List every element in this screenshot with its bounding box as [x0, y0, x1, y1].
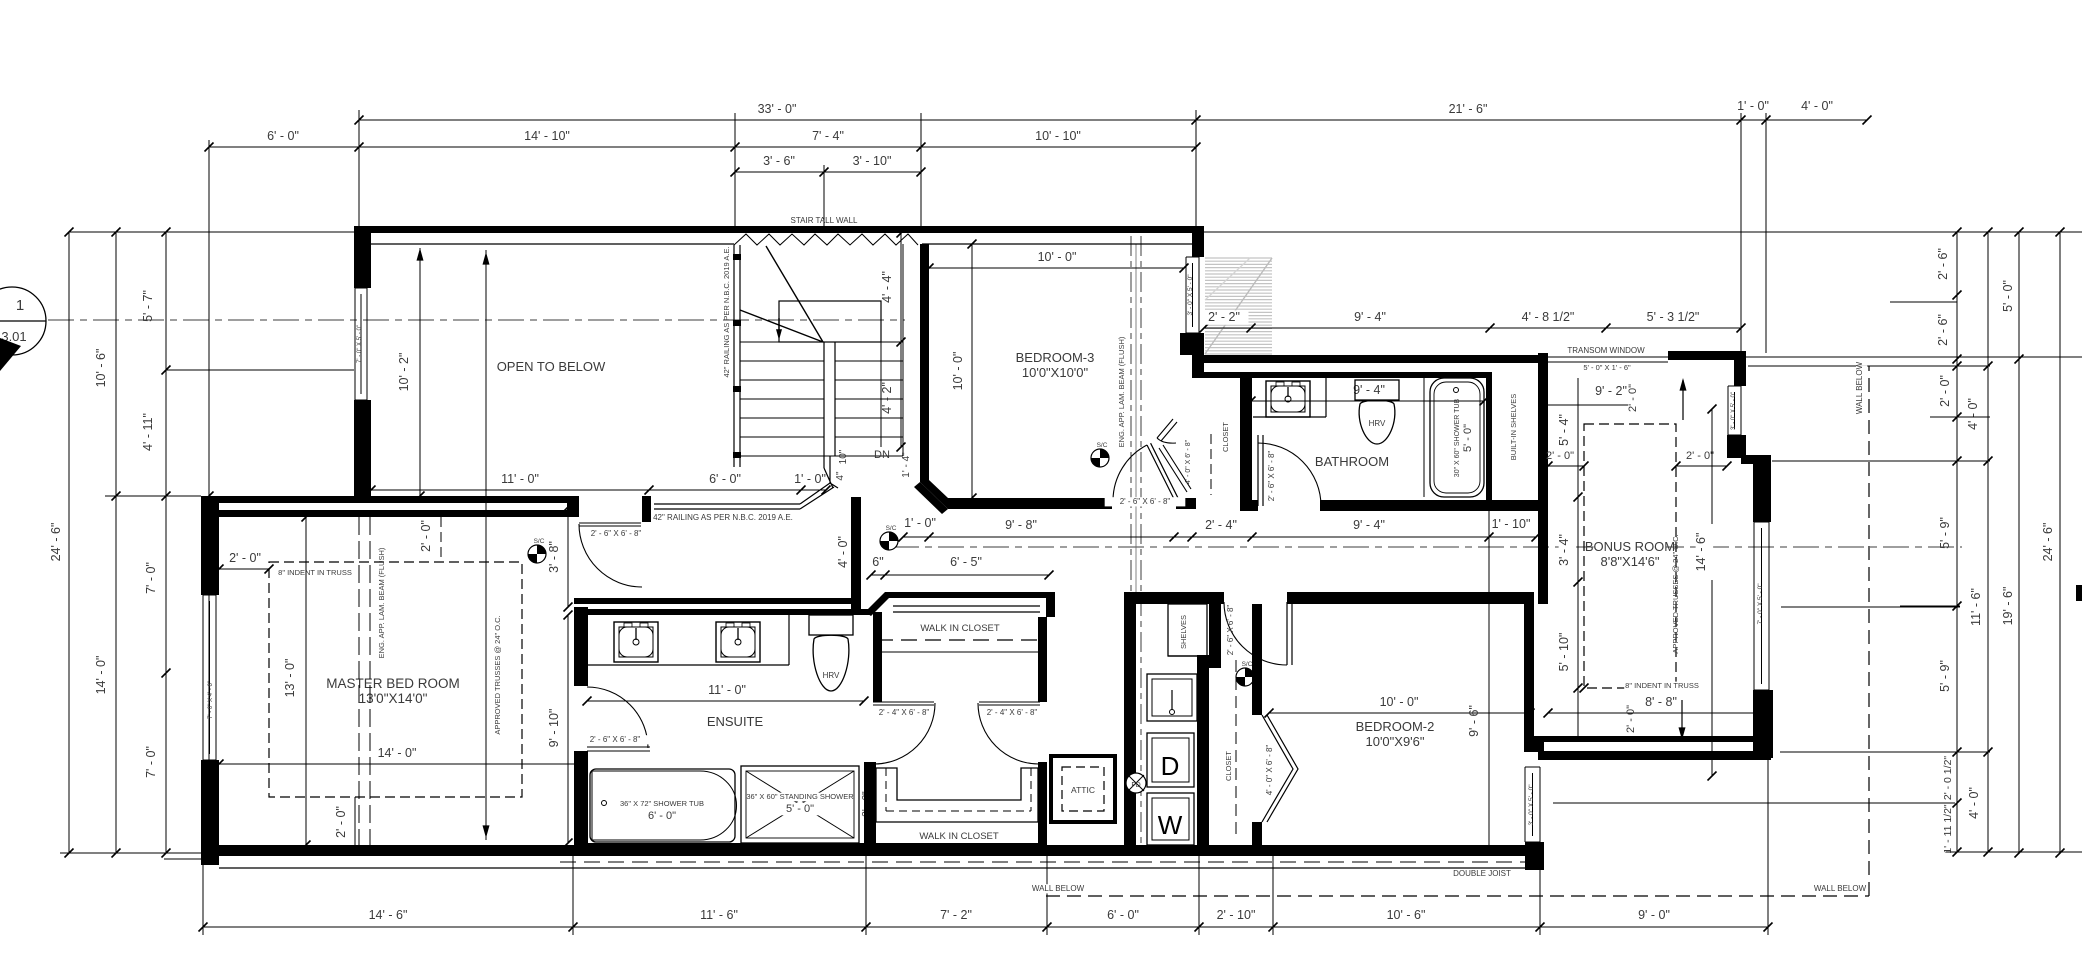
svg-text:11' - 0": 11' - 0": [708, 683, 746, 697]
svg-text:5' - 0": 5' - 0": [2001, 280, 2015, 312]
svg-text:S/C: S/C: [886, 525, 897, 532]
svg-text:7' - 0": 7' - 0": [144, 746, 158, 778]
svg-text:S/C: S/C: [1242, 661, 1253, 668]
svg-text:14' - 10": 14' - 10": [524, 129, 570, 143]
svg-text:ENG. APP. LAM. BEAM (FLUSH): ENG. APP. LAM. BEAM (FLUSH): [1117, 336, 1126, 447]
svg-text:ENG. APP. LAM. BEAM (FLUSH): ENG. APP. LAM. BEAM (FLUSH): [377, 547, 386, 658]
svg-text:2' - 0": 2' - 0": [334, 806, 348, 838]
svg-text:W: W: [1158, 810, 1183, 840]
svg-text:2' - 6" X 6' - 8": 2' - 6" X 6' - 8": [1267, 451, 1276, 502]
svg-text:33' - 0": 33' - 0": [758, 102, 797, 116]
svg-text:4": 4": [835, 471, 846, 481]
svg-text:CLOSET: CLOSET: [1221, 422, 1230, 452]
svg-text:9' - 2": 9' - 2": [1595, 384, 1627, 398]
svg-text:1' - 0": 1' - 0": [1737, 99, 1769, 113]
svg-text:6' - 0": 6' - 0": [267, 129, 299, 143]
svg-text:10'0"X10'0": 10'0"X10'0": [1022, 365, 1089, 380]
svg-text:13'0"X14'0": 13'0"X14'0": [359, 691, 428, 706]
svg-text:1: 1: [16, 297, 24, 314]
svg-text:2' - 0": 2' - 0": [229, 551, 261, 565]
svg-text:STAIR TALL WALL: STAIR TALL WALL: [791, 216, 859, 225]
svg-text:10' - 6": 10' - 6": [94, 349, 108, 388]
svg-text:4' - 11": 4' - 11": [141, 413, 155, 451]
svg-text:APPROVED TRUSSES @ 24" O.C.: APPROVED TRUSSES @ 24" O.C.: [493, 615, 502, 734]
svg-text:7' - 4": 7' - 4": [812, 129, 844, 143]
svg-text:36" X 60" STANDING SHOWER: 36" X 60" STANDING SHOWER: [746, 792, 854, 801]
svg-text:2' - 2": 2' - 2": [1208, 310, 1240, 324]
svg-text:9' - 4": 9' - 4": [1354, 310, 1386, 324]
svg-text:2' - 6" X 6' - 8": 2' - 6" X 6' - 8": [1120, 497, 1171, 506]
svg-text:1' - 10": 1' - 10": [1492, 517, 1531, 531]
svg-text:BONUS ROOM: BONUS ROOM: [1585, 539, 1675, 554]
svg-text:2' - 0": 2' - 0": [1625, 705, 1637, 733]
svg-text:19' - 6": 19' - 6": [2001, 587, 2015, 626]
svg-text:3' - 0" X 5' - 0": 3' - 0" X 5' - 0": [1187, 274, 1194, 316]
svg-text:5' - 10": 5' - 10": [1557, 633, 1571, 672]
svg-text:2' - 4" X 6' - 8": 2' - 4" X 6' - 8": [879, 708, 930, 717]
svg-text:TRANSOM WINDOW: TRANSOM WINDOW: [1567, 346, 1645, 355]
svg-text:7' - 0": 7' - 0": [144, 562, 158, 594]
svg-text:BEDROOM-2: BEDROOM-2: [1356, 719, 1435, 734]
svg-text:CLOSET: CLOSET: [1224, 751, 1233, 781]
svg-text:WALK IN CLOSET: WALK IN CLOSET: [920, 623, 1000, 634]
svg-text:10": 10": [838, 449, 849, 464]
svg-text:SHELVES: SHELVES: [1179, 615, 1188, 649]
svg-text:ATTIC: ATTIC: [1071, 785, 1095, 795]
svg-text:2' - 6" X 6' - 8": 2' - 6" X 6' - 8": [590, 735, 641, 744]
svg-text:HRV: HRV: [1369, 419, 1386, 428]
svg-text:13' - 0": 13' - 0": [283, 659, 297, 698]
svg-text:9' - 0": 9' - 0": [1638, 908, 1670, 922]
svg-text:6' - 0": 6' - 0": [648, 810, 676, 822]
svg-text:2' - 0 1/2": 2' - 0 1/2": [1942, 756, 1954, 801]
svg-text:42" RAILING AS PER N.B.C. 2019: 42" RAILING AS PER N.B.C. 2019 A.E.: [653, 513, 793, 522]
svg-text:2' - 6": 2' - 6": [1936, 248, 1950, 280]
svg-text:S/C: S/C: [1097, 442, 1108, 449]
svg-text:42" RAILING AS PER N.B.C. 2019: 42" RAILING AS PER N.B.C. 2019 A.E.: [722, 246, 731, 377]
svg-text:2' - 0": 2' - 0": [419, 520, 433, 552]
svg-text:5' - 4": 5' - 4": [1557, 414, 1571, 446]
svg-text:4' - 0" X 6' - 8": 4' - 0" X 6' - 8": [1185, 439, 1192, 484]
svg-text:5' - 0" X 1' - 6": 5' - 0" X 1' - 6": [1583, 363, 1631, 372]
svg-text:4' - 0" X 6' - 8": 4' - 0" X 6' - 8": [1265, 745, 1274, 796]
svg-text:6' - 0": 6' - 0": [709, 472, 741, 486]
svg-text:10' - 2": 10' - 2": [397, 353, 411, 392]
svg-text:1' - 0": 1' - 0": [794, 472, 826, 486]
svg-text:MASTER BED ROOM: MASTER BED ROOM: [326, 676, 460, 691]
svg-text:5' - 9": 5' - 9": [1938, 517, 1952, 549]
svg-text:DN: DN: [874, 449, 890, 461]
svg-text:D: D: [1161, 751, 1180, 781]
svg-text:10' - 0": 10' - 0": [1380, 695, 1419, 709]
svg-text:6": 6": [872, 555, 883, 569]
svg-text:5' - 3 1/2": 5' - 3 1/2": [1647, 310, 1700, 324]
svg-text:2' - 10": 2' - 10": [1217, 908, 1256, 922]
svg-text:APPROVED TRUSSES @ 24" O.C.: APPROVED TRUSSES @ 24" O.C.: [1671, 534, 1680, 653]
svg-text:FD: FD: [1131, 782, 1140, 789]
svg-text:21' - 6": 21' - 6": [1449, 102, 1488, 116]
svg-text:4' - 4": 4' - 4": [880, 271, 894, 303]
svg-text:WALL BELOW: WALL BELOW: [1855, 361, 1864, 414]
svg-text:2' - 0": 2' - 0": [1686, 450, 1714, 462]
svg-text:4' - 0": 4' - 0": [1967, 787, 1981, 819]
svg-text:4' - 0": 4' - 0": [836, 536, 850, 568]
svg-text:7' - 0" X 5' - 0": 7' - 0" X 5' - 0": [1757, 583, 1764, 625]
svg-text:2' - 4": 2' - 4": [1205, 518, 1237, 532]
svg-text:14' - 0": 14' - 0": [94, 656, 108, 695]
svg-text:11' - 6": 11' - 6": [700, 908, 738, 922]
svg-text:5' - 7": 5' - 7": [141, 290, 155, 322]
svg-text:3' - 4": 3' - 4": [1557, 534, 1571, 566]
svg-text:1' - 4": 1' - 4": [901, 452, 912, 478]
svg-text:BEDROOM-3: BEDROOM-3: [1016, 350, 1095, 365]
svg-text:DOUBLE JOIST: DOUBLE JOIST: [1453, 869, 1511, 878]
svg-text:S/C: S/C: [534, 538, 545, 545]
svg-text:9' - 8": 9' - 8": [1005, 518, 1037, 532]
svg-text:4' - 0": 4' - 0": [1801, 99, 1833, 113]
svg-text:8" INDENT IN TRUSS: 8" INDENT IN TRUSS: [278, 568, 352, 577]
svg-text:OPEN TO BELOW: OPEN TO BELOW: [497, 359, 606, 374]
svg-text:WALL BELOW: WALL BELOW: [1032, 884, 1085, 893]
svg-text:3' - 0" X 5' - 0": 3' - 0" X 5' - 0": [1731, 392, 1737, 430]
svg-text:9' - 4": 9' - 4": [1353, 383, 1385, 397]
svg-text:10' - 10": 10' - 10": [1035, 129, 1081, 143]
svg-text:10' - 0": 10' - 0": [1038, 250, 1077, 264]
svg-text:8' - 8": 8' - 8": [1645, 695, 1677, 709]
svg-text:BATHROOM: BATHROOM: [1315, 454, 1389, 469]
svg-text:4' - 8 1/2": 4' - 8 1/2": [1522, 310, 1575, 324]
svg-text:9' - 4": 9' - 4": [1353, 518, 1385, 532]
svg-text:5' - 0": 5' - 0": [1462, 424, 1474, 452]
svg-text:4' - 2": 4' - 2": [880, 382, 894, 414]
svg-text:5' - 0": 5' - 0": [786, 803, 814, 815]
svg-text:14' - 0": 14' - 0": [378, 746, 417, 760]
svg-text:1' - 0": 1' - 0": [904, 516, 936, 530]
svg-text:7' - 0" X 4' - 6": 7' - 0" X 4' - 6": [208, 681, 214, 719]
svg-text:3' - 0" X 5' - 0": 3' - 0" X 5' - 0": [1528, 784, 1535, 826]
svg-text:7' - 2": 7' - 2": [940, 908, 972, 922]
svg-text:2' - 0": 2' - 0": [1546, 450, 1574, 462]
svg-text:6' - 0": 6' - 0": [1107, 908, 1139, 922]
svg-text:ENSUITE: ENSUITE: [707, 714, 764, 729]
svg-text:36" X 72" SHOWER TUB: 36" X 72" SHOWER TUB: [620, 799, 704, 808]
svg-text:2' - 0": 2' - 0": [1627, 384, 1639, 412]
svg-text:2' - 0": 2' - 0": [1938, 375, 1952, 407]
svg-text:4' - 0": 4' - 0": [1966, 398, 1980, 430]
svg-text:10' - 6": 10' - 6": [1387, 908, 1426, 922]
svg-text:6' - 5": 6' - 5": [950, 555, 982, 569]
svg-text:24' - 6": 24' - 6": [49, 523, 63, 562]
svg-text:14' - 6": 14' - 6": [1694, 533, 1708, 572]
svg-text:8'8"X14'6": 8'8"X14'6": [1600, 554, 1659, 569]
svg-text:8" INDENT IN TRUSS: 8" INDENT IN TRUSS: [1625, 681, 1699, 690]
svg-text:11' - 0": 11' - 0": [501, 472, 539, 486]
svg-text:2' - 6" X 6' - 8": 2' - 6" X 6' - 8": [1226, 605, 1235, 656]
svg-text:2' - 4" X 6' - 8": 2' - 4" X 6' - 8": [987, 708, 1038, 717]
svg-text:11' - 6": 11' - 6": [1969, 588, 1983, 626]
svg-text:5' - 9": 5' - 9": [1938, 660, 1952, 692]
svg-text:2' - 6" X 6' - 8": 2' - 6" X 6' - 8": [591, 529, 642, 538]
svg-text:9' - 6": 9' - 6": [1467, 705, 1481, 737]
svg-text:10'0"X9'6": 10'0"X9'6": [1365, 734, 1424, 749]
svg-text:BUILT-IN SHELVES: BUILT-IN SHELVES: [1509, 394, 1518, 460]
svg-text:WALK IN CLOSET: WALK IN CLOSET: [919, 831, 999, 842]
svg-text:30" X 60" SHOWER TUB: 30" X 60" SHOWER TUB: [1454, 398, 1461, 477]
svg-text:WALL BELOW: WALL BELOW: [1814, 884, 1867, 893]
svg-text:3' - 6": 3' - 6": [763, 154, 795, 168]
svg-text:24' - 6": 24' - 6": [2041, 523, 2055, 562]
svg-text:14' - 6": 14' - 6": [369, 908, 408, 922]
svg-text:1' - 11 1/2": 1' - 11 1/2": [1942, 804, 1954, 854]
svg-text:2' - 6": 2' - 6": [1936, 314, 1950, 346]
svg-text:3' - 10": 3' - 10": [853, 154, 892, 168]
svg-text:10' - 0": 10' - 0": [951, 352, 965, 391]
svg-text:9' - 10": 9' - 10": [547, 709, 561, 748]
svg-text:HRV: HRV: [823, 671, 840, 680]
svg-text:3' - 8": 3' - 8": [547, 541, 561, 573]
svg-text:7' - 0" X 5' - 0": 7' - 0" X 5' - 0": [357, 325, 363, 363]
